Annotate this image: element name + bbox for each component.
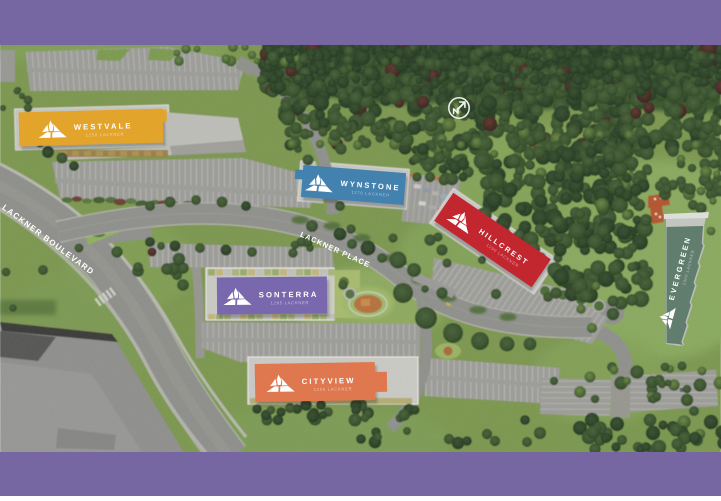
svg-text:1250 LACKNER: 1250 LACKNER xyxy=(86,132,125,138)
svg-text:1255 LACKNER: 1255 LACKNER xyxy=(314,386,353,392)
svg-text:SONTERRA: SONTERRA xyxy=(259,290,319,300)
svg-text:WESTVALE: WESTVALE xyxy=(74,121,133,132)
svg-text:CITYVIEW: CITYVIEW xyxy=(302,376,356,386)
svg-text:1265 LACKNER: 1265 LACKNER xyxy=(271,300,310,305)
